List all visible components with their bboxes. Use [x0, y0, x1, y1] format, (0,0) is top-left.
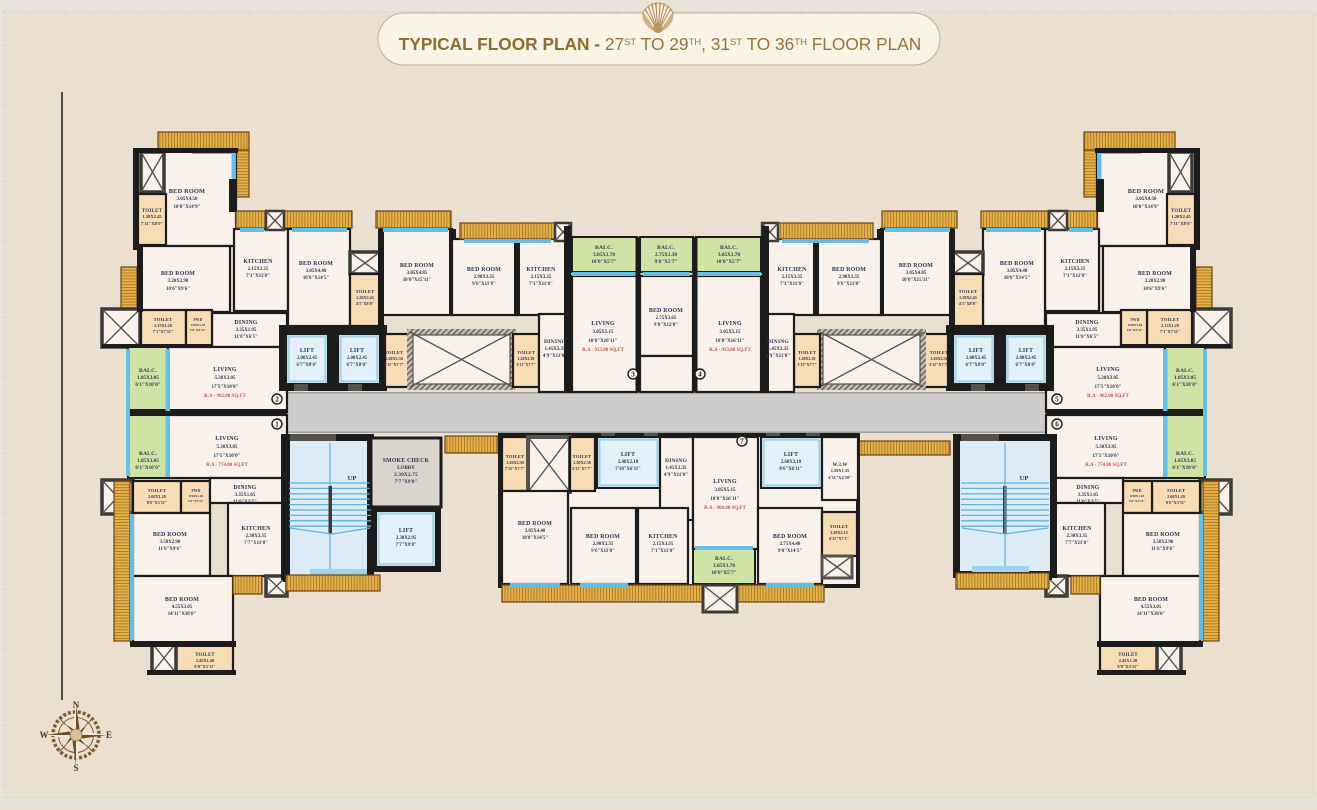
svg-text:3.35X1.95: 3.35X1.95: [1077, 328, 1098, 333]
svg-text:1.45X3.35: 1.45X3.35: [665, 466, 687, 471]
svg-text:3.50X2.90: 3.50X2.90: [160, 540, 181, 545]
svg-text:10'0"X5'7": 10'0"X5'7": [711, 570, 736, 576]
svg-text:7'7"X9'0": 7'7"X9'0": [395, 479, 418, 485]
svg-text:11'6"X9'6": 11'6"X9'6": [158, 547, 182, 552]
svg-text:6'1"X10'0": 6'1"X10'0": [135, 465, 160, 471]
svg-text:UP: UP: [348, 475, 357, 482]
svg-text:6'1"X10'0": 6'1"X10'0": [135, 382, 160, 388]
svg-text:7'1"X7'11": 7'1"X7'11": [1160, 329, 1180, 334]
svg-text:5.30X3.05: 5.30X3.05: [214, 376, 236, 381]
svg-text:LIFT: LIFT: [300, 348, 314, 354]
svg-text:1.50X2.15: 1.50X2.15: [830, 530, 848, 535]
svg-text:7'7"X9'8": 7'7"X9'8": [395, 543, 416, 548]
svg-text:BED ROOM: BED ROOM: [467, 267, 501, 273]
svg-text:2.30X3.35: 2.30X3.35: [246, 534, 267, 539]
svg-text:2'6"X3'11": 2'6"X3'11": [1127, 328, 1144, 332]
svg-text:14'11"X10'0": 14'11"X10'0": [168, 612, 197, 617]
svg-text:LIFT: LIFT: [784, 452, 798, 458]
svg-text:DINING: DINING: [1075, 320, 1098, 326]
svg-text:LIFT: LIFT: [1019, 348, 1033, 354]
svg-text:2.75X4.40: 2.75X4.40: [780, 542, 801, 547]
svg-text:DINING: DINING: [544, 339, 566, 345]
svg-text:11'0"X3'5": 11'0"X3'5": [1076, 500, 1100, 505]
svg-text:6'7"X8'0": 6'7"X8'0": [1015, 363, 1036, 368]
svg-text:11'0"X6'5": 11'0"X6'5": [1075, 335, 1099, 340]
svg-text:UP: UP: [1020, 475, 1029, 482]
svg-text:3.05X5.15: 3.05X5.15: [714, 488, 736, 493]
svg-text:S: S: [73, 763, 78, 773]
svg-text:10'6"X9'6": 10'6"X9'6": [166, 287, 190, 292]
svg-text:9'0"X14'5": 9'0"X14'5": [778, 549, 802, 554]
svg-text:1.20X2.30: 1.20X2.30: [799, 356, 816, 361]
svg-text:2.15X3.35: 2.15X3.35: [653, 542, 674, 547]
svg-text:3.05X5.15: 3.05X5.15: [719, 330, 741, 335]
svg-text:2: 2: [275, 396, 279, 404]
svg-text:3.35X1.05: 3.35X1.05: [1078, 493, 1099, 498]
svg-text:10'0"X14'5": 10'0"X14'5": [522, 536, 549, 541]
svg-text:3.05X1.70: 3.05X1.70: [713, 563, 735, 569]
svg-text:3.20X2.90: 3.20X2.90: [168, 279, 189, 284]
svg-text:DINING: DINING: [767, 339, 789, 345]
svg-text:1.20X2.45: 1.20X2.45: [142, 214, 162, 219]
svg-text:LIFT: LIFT: [621, 452, 635, 458]
svg-text:3.05X4.50: 3.05X4.50: [1135, 197, 1157, 202]
svg-text:10'0"X16'11": 10'0"X16'11": [710, 497, 739, 502]
svg-text:PWD: PWD: [1131, 318, 1140, 322]
svg-text:2.75X3.65: 2.75X3.65: [656, 316, 677, 321]
svg-text:PWD: PWD: [1133, 489, 1142, 493]
svg-text:1.45X3.35: 1.45X3.35: [544, 347, 566, 352]
svg-text:8'0"X3'11": 8'0"X3'11": [1117, 664, 1138, 669]
svg-text:TOILET: TOILET: [356, 289, 375, 294]
svg-text:BALC.: BALC.: [139, 368, 157, 374]
svg-text:1.50X1.35: 1.50X1.35: [831, 468, 850, 473]
svg-text:3.05X4.40: 3.05X4.40: [1007, 269, 1028, 274]
svg-text:BED ROOM: BED ROOM: [299, 261, 333, 267]
svg-text:10'0"X15'11": 10'0"X15'11": [902, 278, 931, 283]
svg-text:DINING: DINING: [233, 485, 256, 491]
svg-text:4'9"X11'0": 4'9"X11'0": [543, 354, 567, 359]
svg-text:6'7"X8'0": 6'7"X8'0": [296, 363, 317, 368]
svg-text:KITCHEN: KITCHEN: [243, 259, 273, 265]
svg-text:LIFT: LIFT: [399, 528, 413, 534]
svg-text:3: 3: [631, 371, 635, 379]
svg-text:2'6"X3'11": 2'6"X3'11": [1129, 499, 1146, 503]
svg-text:3'11"X7'7": 3'11"X7'7": [572, 466, 592, 471]
svg-text:10'6"X9'6": 10'6"X9'6": [1143, 287, 1167, 292]
svg-text:8'6"X6'11": 8'6"X6'11": [779, 467, 803, 472]
svg-text:TYPICAL FLOOR PLAN - 27ST TO 2: TYPICAL FLOOR PLAN - 27ST TO 29TH, 31ST …: [399, 34, 921, 54]
svg-text:BED ROOM: BED ROOM: [832, 267, 866, 273]
svg-text:R.A - 962.00 SQ.FT: R.A - 962.00 SQ.FT: [204, 394, 246, 399]
svg-text:DINING: DINING: [234, 320, 257, 326]
svg-text:2.75X1.30: 2.75X1.30: [655, 252, 677, 258]
svg-text:7'1"X11'0": 7'1"X11'0": [529, 282, 553, 287]
svg-text:LIVING: LIVING: [1094, 436, 1118, 442]
svg-text:BED ROOM: BED ROOM: [1134, 597, 1168, 603]
svg-text:2.30X2.75: 2.30X2.75: [394, 472, 418, 478]
svg-text:N: N: [73, 700, 80, 710]
svg-text:7'1"X7'11": 7'1"X7'11": [153, 329, 173, 334]
svg-text:8'6"X3'11": 8'6"X3'11": [147, 500, 167, 505]
svg-text:R.A - 774.00 SQ.FT: R.A - 774.00 SQ.FT: [206, 463, 248, 468]
svg-text:3.05X4.40: 3.05X4.40: [525, 529, 546, 534]
svg-text:1.85X3.05: 1.85X3.05: [1174, 375, 1196, 381]
svg-text:10'0"X5'7": 10'0"X5'7": [591, 259, 616, 265]
svg-text:BED ROOM: BED ROOM: [1138, 271, 1172, 277]
svg-text:TOILET: TOILET: [517, 350, 535, 355]
svg-text:BED ROOM: BED ROOM: [400, 263, 434, 269]
svg-text:3.20X2.90: 3.20X2.90: [1145, 279, 1166, 284]
svg-text:TOILET: TOILET: [830, 524, 849, 529]
svg-text:R.A - 933.00 SQ.FT: R.A - 933.00 SQ.FT: [582, 348, 624, 353]
svg-text:1.20X2.45: 1.20X2.45: [356, 295, 374, 300]
svg-text:2.30X2.95: 2.30X2.95: [396, 536, 417, 541]
svg-text:10'0"X5'7": 10'0"X5'7": [716, 259, 741, 265]
svg-text:7'1"X11'0": 7'1"X11'0": [651, 549, 675, 554]
svg-text:2'6"X3'11": 2'6"X3'11": [190, 328, 207, 332]
svg-text:BALC.: BALC.: [715, 556, 733, 562]
svg-text:8'0"X3'11": 8'0"X3'11": [194, 664, 215, 669]
svg-text:2.90X3.35: 2.90X3.35: [593, 542, 614, 547]
svg-text:0.90X1.20: 0.90X1.20: [191, 323, 206, 327]
svg-text:BED ROOM: BED ROOM: [899, 263, 933, 269]
svg-text:BALC.: BALC.: [1176, 368, 1194, 374]
svg-text:6'1"X10'0": 6'1"X10'0": [1172, 465, 1197, 471]
svg-text:9'6"X11'0": 9'6"X11'0": [472, 282, 496, 287]
svg-text:DINING: DINING: [665, 458, 687, 464]
svg-text:2.45X1.20: 2.45X1.20: [1119, 658, 1138, 663]
svg-text:0.90X1.20: 0.90X1.20: [1130, 494, 1145, 498]
svg-text:10'0"X14'9": 10'0"X14'9": [174, 205, 201, 210]
svg-text:4.55X3.05: 4.55X3.05: [172, 605, 193, 610]
svg-text:3.05X4.40: 3.05X4.40: [306, 269, 327, 274]
svg-text:1.85X3.05: 1.85X3.05: [137, 458, 159, 464]
svg-text:TOILET: TOILET: [573, 454, 592, 459]
svg-text:2.60X2.10: 2.60X2.10: [781, 460, 802, 465]
svg-text:10'0"X14'5": 10'0"X14'5": [1004, 276, 1031, 281]
svg-text:1.20X2.30: 1.20X2.30: [518, 356, 535, 361]
svg-text:R.A - 774.00 SQ.FT: R.A - 774.00 SQ.FT: [1085, 463, 1127, 468]
svg-text:2.15X3.35: 2.15X3.35: [248, 267, 269, 272]
svg-text:2.60X1.20: 2.60X1.20: [148, 494, 166, 499]
svg-text:BED ROOM: BED ROOM: [518, 521, 552, 527]
svg-text:5.30X3.05: 5.30X3.05: [1095, 445, 1117, 450]
svg-text:0.90X1.20: 0.90X1.20: [1128, 323, 1143, 327]
svg-text:5.30X3.05: 5.30X3.05: [216, 445, 238, 450]
svg-text:4: 4: [698, 371, 702, 379]
svg-text:4'1"X8'0": 4'1"X8'0": [356, 301, 374, 306]
svg-text:BED ROOM: BED ROOM: [1146, 532, 1180, 538]
svg-text:BED ROOM: BED ROOM: [1128, 188, 1164, 195]
svg-text:KITCHEN: KITCHEN: [526, 267, 556, 273]
svg-text:3.35X1.95: 3.35X1.95: [236, 328, 257, 333]
svg-text:KITCHEN: KITCHEN: [241, 526, 271, 532]
svg-text:10'0"X15'11": 10'0"X15'11": [403, 278, 432, 283]
svg-text:2.00X2.45: 2.00X2.45: [297, 356, 318, 361]
svg-text:E: E: [106, 730, 112, 740]
svg-text:17'5"X10'0": 17'5"X10'0": [1095, 385, 1122, 390]
svg-text:7'7"X11'0": 7'7"X11'0": [244, 541, 268, 546]
svg-text:1.20X2.45: 1.20X2.45: [959, 295, 977, 300]
svg-text:1.85X3.05: 1.85X3.05: [137, 375, 159, 381]
svg-text:4'11"X4'10": 4'11"X4'10": [828, 475, 851, 480]
svg-text:PWD: PWD: [194, 318, 203, 322]
svg-text:BALC.: BALC.: [595, 245, 613, 251]
svg-text:17'5"X10'0": 17'5"X10'0": [212, 385, 239, 390]
svg-text:6'7"X8'0": 6'7"X8'0": [965, 363, 986, 368]
svg-text:R.A - 962.00 SQ.FT: R.A - 962.00 SQ.FT: [1087, 394, 1129, 399]
svg-text:11'0"X3'5": 11'0"X3'5": [233, 500, 257, 505]
svg-text:2.00X2.45: 2.00X2.45: [347, 356, 368, 361]
svg-text:7'1"X11'0": 7'1"X11'0": [1063, 274, 1087, 279]
svg-text:2.15X1.20: 2.15X1.20: [1161, 323, 1179, 328]
svg-text:1.20X2.45: 1.20X2.45: [1171, 214, 1191, 219]
svg-text:LIVING: LIVING: [718, 321, 742, 327]
svg-text:1.85X3.05: 1.85X3.05: [1174, 458, 1196, 464]
svg-text:TOILET: TOILET: [154, 317, 173, 322]
svg-text:2.00X2.45: 2.00X2.45: [966, 356, 987, 361]
svg-text:2.15X1.20: 2.15X1.20: [154, 323, 172, 328]
svg-text:4'11"X7'1": 4'11"X7'1": [829, 536, 849, 541]
svg-text:14'11"X10'0": 14'11"X10'0": [1137, 612, 1166, 617]
svg-text:TOILET: TOILET: [930, 350, 949, 355]
svg-text:BED ROOM: BED ROOM: [1000, 261, 1034, 267]
svg-text:TOILET: TOILET: [1161, 317, 1180, 322]
svg-text:BALC.: BALC.: [720, 245, 738, 251]
svg-text:KITCHEN: KITCHEN: [1062, 526, 1092, 532]
svg-text:10'0"X14'9": 10'0"X14'9": [1133, 205, 1160, 210]
svg-text:BED ROOM: BED ROOM: [165, 597, 199, 603]
svg-text:1.20X2.30: 1.20X2.30: [930, 356, 948, 361]
svg-text:6'1"X10'0": 6'1"X10'0": [1172, 382, 1197, 388]
svg-text:2.30X3.35: 2.30X3.35: [1067, 534, 1088, 539]
svg-text:PWD: PWD: [192, 489, 201, 493]
svg-text:LIFT: LIFT: [969, 348, 983, 354]
svg-text:TOILET: TOILET: [506, 454, 525, 459]
svg-text:7'7"X11'0": 7'7"X11'0": [1065, 541, 1089, 546]
svg-text:DINING: DINING: [1076, 485, 1099, 491]
svg-text:3'11"X7'7": 3'11"X7'7": [797, 362, 816, 367]
svg-text:1.20X2.30: 1.20X2.30: [573, 460, 591, 465]
svg-text:W: W: [40, 730, 49, 740]
svg-text:8'6"X3'11": 8'6"X3'11": [1166, 500, 1186, 505]
svg-text:TOILET: TOILET: [798, 350, 816, 355]
svg-text:5: 5: [1055, 396, 1059, 404]
svg-text:17'5"X10'0": 17'5"X10'0": [214, 454, 241, 459]
svg-text:TOILET: TOILET: [1167, 488, 1186, 493]
svg-text:3.35X1.05: 3.35X1.05: [235, 493, 256, 498]
svg-text:BED ROOM: BED ROOM: [649, 308, 683, 314]
svg-text:3'11"X7'7": 3'11"X7'7": [384, 362, 404, 367]
svg-text:LIVING: LIVING: [713, 479, 737, 485]
svg-text:0.90X1.20: 0.90X1.20: [189, 494, 204, 498]
svg-text:R.A - 968.00 SQ.FT: R.A - 968.00 SQ.FT: [704, 506, 746, 511]
svg-text:3.05X1.70: 3.05X1.70: [718, 252, 740, 258]
svg-text:LIFT: LIFT: [350, 348, 364, 354]
svg-text:TOILET: TOILET: [959, 289, 978, 294]
svg-text:4'9"X11'0": 4'9"X11'0": [664, 473, 688, 478]
svg-text:3.05X4.85: 3.05X4.85: [906, 271, 927, 276]
svg-text:7'1"X11'0": 7'1"X11'0": [246, 274, 270, 279]
svg-text:10'0"X16'11": 10'0"X16'11": [588, 339, 617, 344]
svg-text:1.20X2.30: 1.20X2.30: [506, 460, 524, 465]
svg-text:9'6"X11'0": 9'6"X11'0": [837, 282, 861, 287]
svg-text:4.55X3.05: 4.55X3.05: [1141, 605, 1162, 610]
svg-text:BALC.: BALC.: [139, 451, 157, 457]
svg-text:7'11"X8'0": 7'11"X8'0": [1170, 221, 1193, 226]
svg-text:LOBBY: LOBBY: [397, 466, 415, 471]
svg-text:9'6"X11'0": 9'6"X11'0": [591, 549, 615, 554]
svg-text:2.15X3.35: 2.15X3.35: [531, 275, 552, 280]
svg-text:2.15X3.35: 2.15X3.35: [782, 275, 803, 280]
svg-text:11'0"X6'5": 11'0"X6'5": [234, 335, 258, 340]
svg-text:LIVING: LIVING: [215, 436, 239, 442]
svg-text:LIVING: LIVING: [213, 367, 237, 373]
svg-text:TOILET: TOILET: [148, 488, 167, 493]
svg-text:5.30X3.05: 5.30X3.05: [1097, 376, 1119, 381]
svg-text:LIVING: LIVING: [591, 321, 615, 327]
svg-text:2.90X3.35: 2.90X3.35: [839, 275, 860, 280]
svg-text:LIVING: LIVING: [1096, 367, 1120, 373]
svg-text:2'6"X3'11": 2'6"X3'11": [188, 499, 205, 503]
svg-text:R.A - 933.00 SQ.FT: R.A - 933.00 SQ.FT: [709, 348, 751, 353]
svg-text:6'7"X8'0": 6'7"X8'0": [346, 363, 367, 368]
svg-text:9'0"X5'7": 9'0"X5'7": [655, 259, 678, 265]
svg-text:3'11"X7'7": 3'11"X7'7": [516, 362, 535, 367]
svg-text:2.90X3.35: 2.90X3.35: [474, 275, 495, 280]
svg-text:7'11"X8'0": 7'11"X8'0": [141, 221, 164, 226]
svg-text:10'0"X16'11": 10'0"X16'11": [715, 339, 744, 344]
svg-text:3.50X2.90: 3.50X2.90: [1153, 540, 1174, 545]
svg-text:9'0"X12'0": 9'0"X12'0": [654, 323, 678, 328]
svg-text:SMOKE CHECK: SMOKE CHECK: [383, 458, 430, 464]
svg-text:1.45X3.35: 1.45X3.35: [767, 347, 789, 352]
svg-text:7'10"X6'11": 7'10"X6'11": [615, 467, 641, 472]
svg-text:BED ROOM: BED ROOM: [773, 534, 807, 540]
svg-text:1: 1: [275, 421, 279, 429]
svg-text:BALC.: BALC.: [657, 245, 675, 251]
svg-text:3'11"X7'7": 3'11"X7'7": [929, 362, 949, 367]
svg-text:BED ROOM: BED ROOM: [586, 534, 620, 540]
svg-text:BED ROOM: BED ROOM: [161, 271, 195, 277]
svg-text:10'0"X14'5": 10'0"X14'5": [303, 276, 330, 281]
svg-text:3.05X1.70: 3.05X1.70: [593, 252, 615, 258]
svg-text:2.15X3.35: 2.15X3.35: [1065, 267, 1086, 272]
svg-text:KITCHEN: KITCHEN: [648, 534, 678, 540]
svg-text:BED ROOM: BED ROOM: [153, 532, 187, 538]
svg-text:3.05X5.15: 3.05X5.15: [592, 330, 614, 335]
svg-text:2.60X1.20: 2.60X1.20: [1167, 494, 1185, 499]
svg-text:7: 7: [740, 438, 744, 446]
svg-text:1.20X2.30: 1.20X2.30: [385, 356, 403, 361]
svg-text:2.45X1.20: 2.45X1.20: [196, 658, 215, 663]
svg-text:11'6"X9'6": 11'6"X9'6": [1151, 547, 1175, 552]
svg-text:7'11"X7'7": 7'11"X7'7": [505, 466, 525, 471]
svg-text:KITCHEN: KITCHEN: [777, 267, 807, 273]
svg-text:7'1"X11'0": 7'1"X11'0": [780, 282, 804, 287]
svg-text:6: 6: [1055, 421, 1059, 429]
svg-text:TOILET: TOILET: [385, 350, 404, 355]
svg-text:3.05X4.85: 3.05X4.85: [407, 271, 428, 276]
svg-text:2.00X2.45: 2.00X2.45: [1016, 356, 1037, 361]
svg-text:17'5"X10'0": 17'5"X10'0": [1093, 454, 1120, 459]
svg-text:BED ROOM: BED ROOM: [169, 188, 205, 195]
svg-text:KITCHEN: KITCHEN: [1060, 259, 1090, 265]
svg-text:3.05X4.50: 3.05X4.50: [176, 197, 198, 202]
svg-text:4'1"X8'0": 4'1"X8'0": [959, 301, 977, 306]
svg-text:BALC.: BALC.: [1176, 451, 1194, 457]
svg-text:2.40X2.10: 2.40X2.10: [618, 460, 639, 465]
svg-text:4'9"X11'0": 4'9"X11'0": [766, 354, 790, 359]
